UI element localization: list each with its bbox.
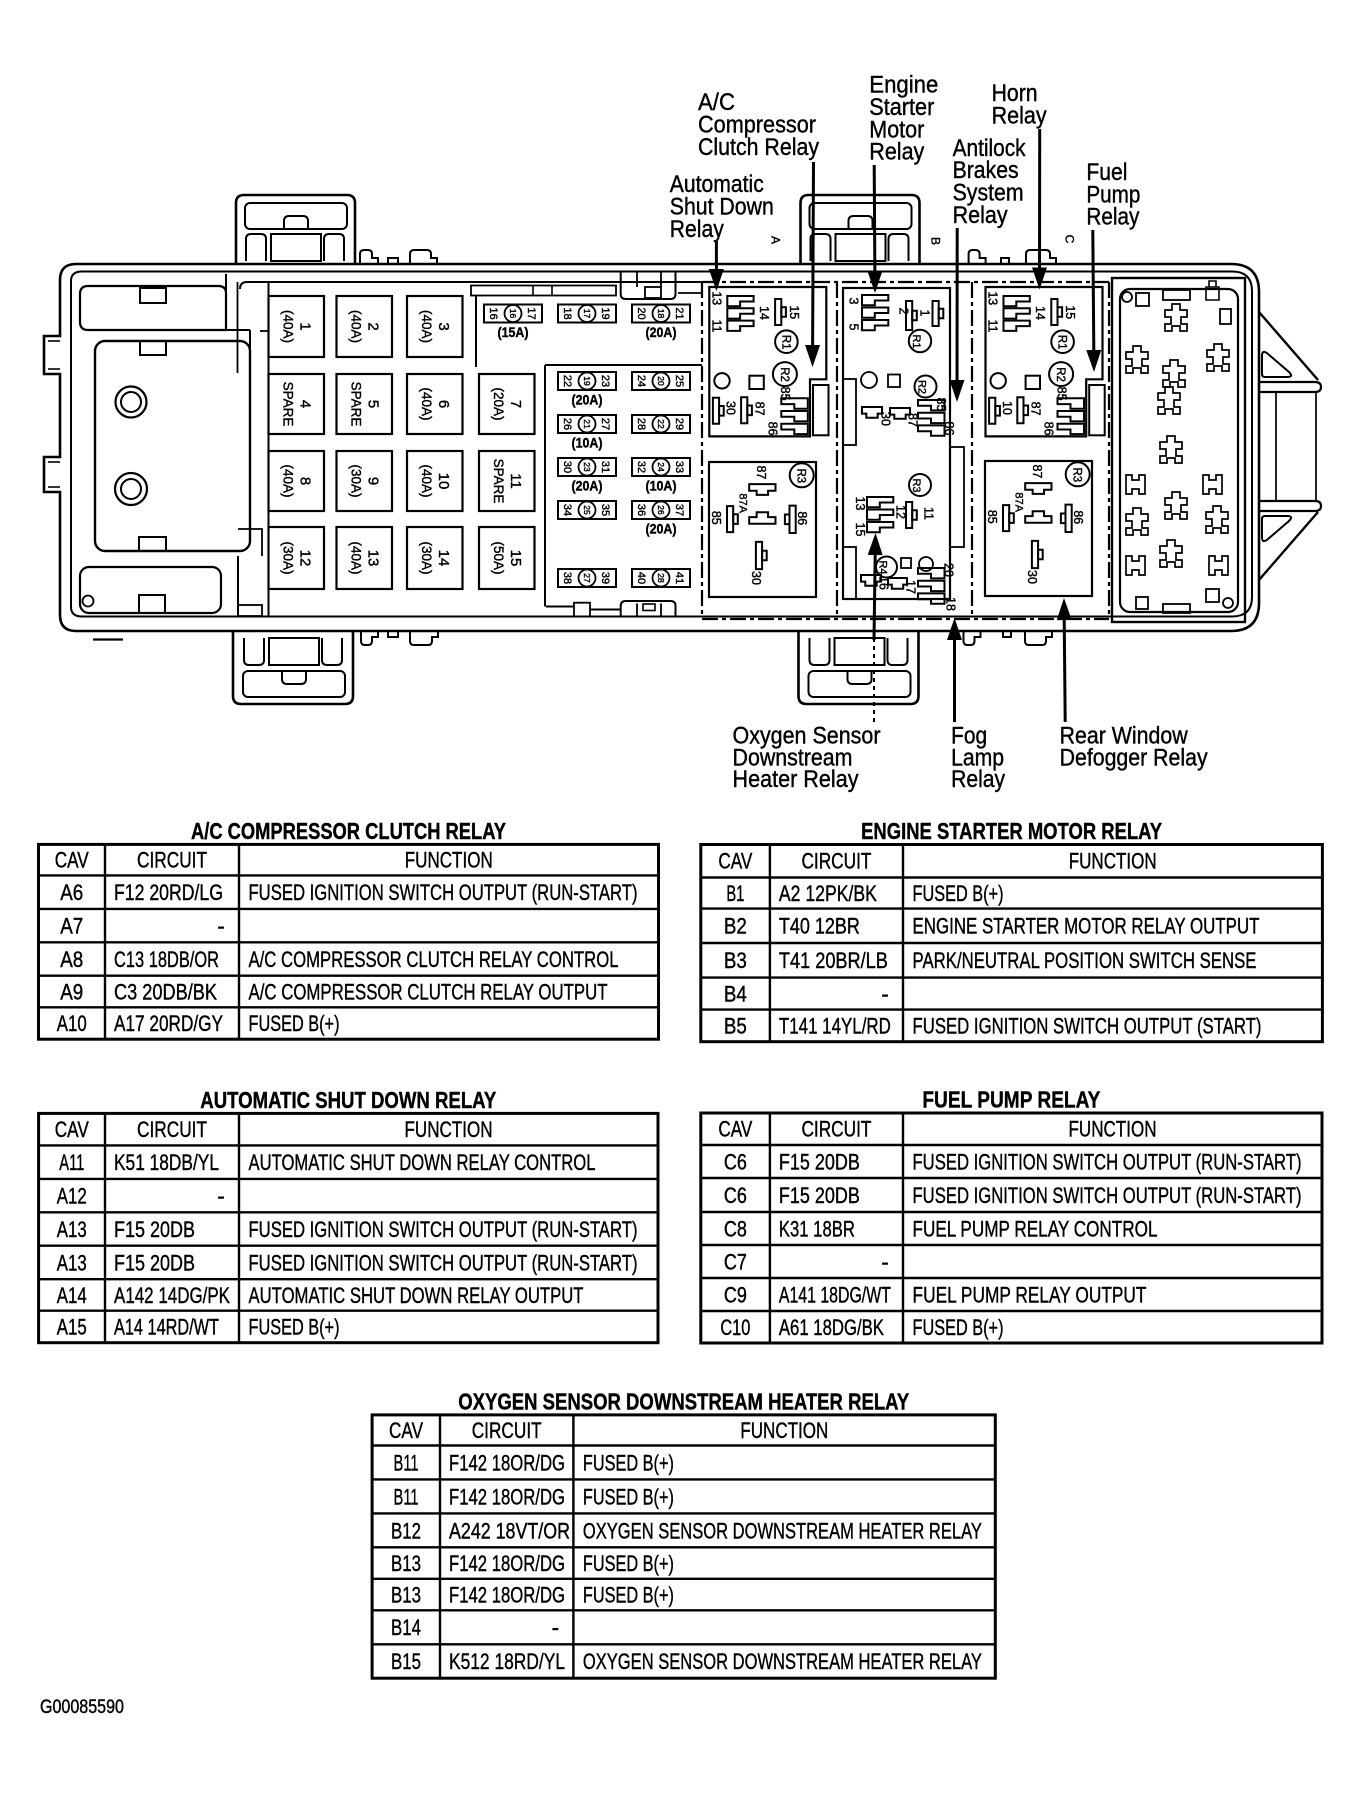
svg-text:CAV: CAV [718,1117,752,1142]
svg-text:5: 5 [364,400,381,408]
svg-text:87: 87 [754,465,768,479]
svg-text:4: 4 [296,400,313,408]
svg-text:OXYGEN SENSOR DOWNSTREAM HEATE: OXYGEN SENSOR DOWNSTREAM HEATER RELAY [458,1388,909,1414]
svg-text:(20A): (20A) [572,392,603,408]
svg-text:A/C COMPRESSOR CLUTCH RELAY: A/C COMPRESSOR CLUTCH RELAY [191,818,506,844]
svg-text:A15: A15 [57,1315,87,1340]
svg-text:CIRCUIT: CIRCUIT [472,1418,542,1443]
svg-text:13: 13 [709,291,723,305]
svg-text:27: 27 [599,418,611,430]
svg-text:85: 85 [709,511,723,525]
svg-text:FUNCTION: FUNCTION [1069,849,1157,874]
svg-text:AUTOMATIC SHUT DOWN RELAY CONT: AUTOMATIC SHUT DOWN RELAY CONTROL [249,1150,596,1175]
svg-text:F142 18OR/DG: F142 18OR/DG [449,1484,565,1509]
svg-text:K512 18RD/YL: K512 18RD/YL [449,1649,565,1674]
svg-text:R1: R1 [1055,335,1067,350]
svg-text:87A: 87A [737,493,749,513]
svg-text:19: 19 [599,307,611,319]
svg-text:R1: R1 [779,335,791,350]
svg-text:CAV: CAV [55,848,89,873]
svg-text:-: - [881,1249,889,1274]
svg-text:11: 11 [922,507,936,520]
svg-text:T41 20BR/LB: T41 20BR/LB [779,948,888,973]
svg-text:22: 22 [561,375,573,387]
svg-text:C: C [1063,235,1077,244]
svg-text:Relay: Relay [869,139,924,166]
svg-text:C13 18DB/OR: C13 18DB/OR [114,947,219,972]
svg-text:(40A): (40A) [348,310,363,343]
svg-text:27: 27 [582,573,592,583]
svg-text:30: 30 [724,401,738,415]
svg-text:39: 39 [599,572,611,584]
svg-text:34: 34 [561,504,573,516]
svg-text:9: 9 [364,477,381,485]
svg-text:23: 23 [599,375,611,387]
svg-text:1: 1 [296,322,313,330]
svg-text:13: 13 [853,497,867,511]
svg-text:17: 17 [525,307,537,319]
svg-text:3: 3 [435,322,452,330]
svg-text:20: 20 [656,376,666,386]
svg-text:(20A): (20A) [646,521,677,537]
svg-text:-: - [217,1184,225,1209]
svg-text:11: 11 [709,320,723,333]
svg-text:F15 20DB: F15 20DB [114,1217,195,1242]
svg-text:F15 20DB: F15 20DB [114,1250,195,1275]
svg-text:C10: C10 [720,1315,750,1340]
svg-text:2: 2 [364,322,381,330]
svg-text:ENGINE STARTER MOTOR RELAY: ENGINE STARTER MOTOR RELAY [861,818,1162,844]
svg-text:12: 12 [296,550,313,567]
svg-text:20: 20 [635,307,647,319]
svg-text:30: 30 [561,461,573,473]
svg-text:26: 26 [561,418,573,430]
svg-text:31: 31 [599,461,611,473]
svg-text:28: 28 [656,573,666,583]
svg-text:FUSED IGNITION SWITCH OUTPUT (: FUSED IGNITION SWITCH OUTPUT (RUN-START) [913,1183,1302,1208]
svg-text:28: 28 [635,418,647,430]
svg-text:3: 3 [847,298,861,305]
svg-text:A12: A12 [57,1184,87,1209]
svg-text:R2: R2 [916,380,928,394]
svg-text:ENGINE STARTER MOTOR RELAY OUT: ENGINE STARTER MOTOR RELAY OUTPUT [913,914,1260,939]
svg-text:33: 33 [673,461,685,473]
svg-text:A11: A11 [59,1150,84,1175]
svg-text:(15A): (15A) [498,324,529,340]
svg-text:87A: 87A [1013,492,1025,512]
svg-text:15: 15 [787,305,801,319]
svg-text:16: 16 [508,309,518,319]
svg-text:13: 13 [364,550,381,567]
svg-text:38: 38 [561,572,573,584]
svg-text:AUTOMATIC SHUT DOWN RELAY: AUTOMATIC SHUT DOWN RELAY [200,1087,496,1113]
svg-text:14: 14 [757,306,771,320]
svg-text:(10A): (10A) [646,478,677,494]
svg-text:B14: B14 [391,1615,421,1640]
svg-text:CAV: CAV [55,1117,89,1142]
svg-text:FUSED IGNITION SWITCH OUTPUT (: FUSED IGNITION SWITCH OUTPUT (RUN-START) [249,880,638,905]
svg-text:86: 86 [765,422,779,436]
svg-text:Clutch Relay: Clutch Relay [698,134,819,161]
svg-text:2: 2 [897,308,911,315]
svg-text:40: 40 [635,572,647,584]
svg-text:86: 86 [1042,422,1056,436]
svg-text:25: 25 [673,375,685,387]
svg-text:16: 16 [487,307,499,319]
svg-text:(10A): (10A) [572,435,603,451]
svg-text:FUSED B(+): FUSED B(+) [249,1315,340,1340]
svg-text:(40A): (40A) [280,464,295,497]
svg-text:15: 15 [1063,305,1077,319]
svg-text:-: - [552,1615,560,1640]
svg-text:FUNCTION: FUNCTION [740,1418,828,1443]
svg-text:11: 11 [507,473,524,489]
svg-text:F15 20DB: F15 20DB [779,1149,860,1174]
svg-text:FUNCTION: FUNCTION [405,1117,493,1142]
svg-text:A8: A8 [60,947,83,972]
svg-text:T40 12BR: T40 12BR [779,914,860,939]
svg-text:A/C COMPRESSOR CLUTCH RELAY OU: A/C COMPRESSOR CLUTCH RELAY OUTPUT [249,979,608,1004]
svg-text:B11: B11 [394,1450,419,1475]
svg-text:86: 86 [1071,510,1085,524]
svg-text:Relay: Relay [953,202,1008,229]
svg-text:FUSED IGNITION SWITCH OUTPUT (: FUSED IGNITION SWITCH OUTPUT (RUN-START) [249,1217,638,1242]
svg-text:A61 18DG/BK: A61 18DG/BK [779,1315,884,1340]
svg-text:A14 14RD/WT: A14 14RD/WT [114,1315,219,1340]
svg-text:B11: B11 [394,1484,419,1509]
svg-text:(40A): (40A) [419,387,434,420]
svg-text:PARK/NEUTRAL POSITION SWITCH S: PARK/NEUTRAL POSITION SWITCH SENSE [913,948,1257,973]
svg-text:11: 11 [986,320,1000,333]
svg-text:Relay: Relay [992,103,1047,130]
svg-text:(30A): (30A) [348,464,363,497]
svg-text:30: 30 [1025,570,1039,584]
svg-text:FUSED IGNITION SWITCH OUTPUT (: FUSED IGNITION SWITCH OUTPUT (START) [913,1014,1262,1039]
svg-text:7: 7 [507,400,524,408]
svg-text:19: 19 [582,376,592,386]
svg-text:23: 23 [582,462,592,472]
svg-text:(20A): (20A) [572,478,603,494]
svg-text:C6: C6 [724,1149,747,1174]
svg-text:FUSED B(+): FUSED B(+) [249,1011,340,1036]
svg-text:Heater Relay: Heater Relay [733,766,859,793]
svg-text:C3 20DB/BK: C3 20DB/BK [114,979,217,1004]
svg-text:C8: C8 [724,1216,747,1241]
svg-text:A7: A7 [60,914,83,939]
svg-text:FUSED B(+): FUSED B(+) [583,1484,674,1509]
svg-text:35: 35 [599,504,611,516]
svg-text:FUNCTION: FUNCTION [405,848,493,873]
svg-text:CIRCUIT: CIRCUIT [801,849,871,874]
svg-text:FUSED B(+): FUSED B(+) [913,1315,1004,1340]
svg-text:17: 17 [904,580,918,594]
svg-text:Defogger Relay: Defogger Relay [1060,744,1208,771]
svg-text:R3: R3 [1071,467,1083,482]
svg-text:21: 21 [582,419,592,429]
svg-text:C7: C7 [724,1249,747,1274]
svg-text:A13: A13 [57,1217,87,1242]
svg-text:B3: B3 [724,948,747,973]
svg-text:18: 18 [656,309,666,319]
svg-text:(40A): (40A) [419,464,434,497]
svg-text:Relay: Relay [951,766,1005,793]
svg-text:14: 14 [435,550,452,567]
svg-text:1: 1 [918,310,932,317]
svg-text:B1: B1 [726,881,744,906]
svg-text:F142 18OR/DG: F142 18OR/DG [449,1582,565,1607]
svg-text:A: A [769,236,783,244]
svg-text:24: 24 [635,375,647,387]
svg-text:FUEL PUMP RELAY: FUEL PUMP RELAY [922,1087,1100,1113]
svg-text:OXYGEN SENSOR DOWNSTREAM HEATE: OXYGEN SENSOR DOWNSTREAM HEATER RELAY [583,1518,982,1543]
svg-text:B15: B15 [391,1649,421,1674]
svg-text:6: 6 [435,400,452,408]
svg-text:FUSED IGNITION SWITCH OUTPUT (: FUSED IGNITION SWITCH OUTPUT (RUN-START) [249,1250,638,1275]
svg-text:K51 18DB/YL: K51 18DB/YL [114,1150,219,1175]
svg-text:AUTOMATIC SHUT DOWN RELAY OUTP: AUTOMATIC SHUT DOWN RELAY OUTPUT [249,1283,584,1308]
svg-text:OXYGEN SENSOR DOWNSTREAM HEATE: OXYGEN SENSOR DOWNSTREAM HEATER RELAY [583,1649,982,1674]
svg-text:CIRCUIT: CIRCUIT [801,1117,871,1142]
svg-text:85: 85 [985,510,999,524]
svg-text:R3: R3 [910,478,922,492]
svg-text:17: 17 [582,309,592,319]
svg-text:15: 15 [507,550,524,567]
svg-text:T141 14YL/RD: T141 14YL/RD [779,1014,891,1039]
svg-text:F142 18OR/DG: F142 18OR/DG [449,1551,565,1576]
svg-text:86: 86 [942,422,956,436]
svg-text:-: - [217,914,225,939]
svg-text:CIRCUIT: CIRCUIT [137,1117,207,1142]
svg-text:R3: R3 [795,468,807,483]
svg-text:25: 25 [582,505,592,515]
svg-text:(20A): (20A) [491,387,506,420]
svg-text:R1: R1 [910,334,922,348]
svg-text:FUSED B(+): FUSED B(+) [583,1450,674,1475]
svg-text:B: B [929,237,943,245]
svg-text:FUEL PUMP RELAY OUTPUT: FUEL PUMP RELAY OUTPUT [913,1282,1147,1307]
svg-text:15: 15 [853,523,867,537]
svg-text:R2: R2 [1054,367,1066,382]
svg-text:A2 12PK/BK: A2 12PK/BK [779,881,877,906]
svg-text:B12: B12 [391,1518,421,1543]
svg-text:C9: C9 [724,1282,747,1307]
svg-text:F142 18OR/DG: F142 18OR/DG [449,1450,565,1475]
svg-text:B4: B4 [724,982,747,1007]
svg-text:A17 20RD/GY: A17 20RD/GY [114,1011,223,1036]
svg-text:A242 18VT/OR: A242 18VT/OR [449,1518,570,1543]
svg-text:18: 18 [561,307,573,319]
svg-text:B13: B13 [391,1582,421,1607]
svg-text:Relay: Relay [1086,204,1139,231]
svg-text:(40A): (40A) [348,541,363,574]
svg-text:87: 87 [1029,402,1043,416]
svg-text:-: - [881,982,889,1007]
svg-text:CIRCUIT: CIRCUIT [137,848,207,873]
svg-text:R4: R4 [877,560,889,574]
svg-text:Relay: Relay [670,216,724,243]
svg-text:SPARE: SPARE [280,382,295,427]
svg-text:CAV: CAV [389,1418,423,1443]
svg-text:SPARE: SPARE [348,382,363,427]
svg-text:5: 5 [847,324,861,331]
svg-text:22: 22 [656,419,666,429]
svg-text:37: 37 [673,504,685,516]
svg-text:FUNCTION: FUNCTION [1069,1117,1157,1142]
svg-text:(50A): (50A) [491,541,506,574]
svg-text:R2: R2 [778,367,790,382]
svg-text:24: 24 [656,462,666,472]
svg-text:(30A): (30A) [280,541,295,574]
svg-text:F15 20DB: F15 20DB [779,1183,860,1208]
svg-text:B2: B2 [724,914,747,939]
svg-text:10: 10 [435,473,452,490]
svg-text:FUSED B(+): FUSED B(+) [913,881,1004,906]
svg-text:FUEL PUMP RELAY CONTROL: FUEL PUMP RELAY CONTROL [913,1216,1158,1241]
svg-text:G00085590: G00085590 [40,1697,124,1718]
svg-text:FUSED B(+): FUSED B(+) [583,1551,674,1576]
svg-text:32: 32 [635,461,647,473]
svg-text:18: 18 [944,597,958,611]
svg-text:A6: A6 [60,880,83,905]
svg-text:A14: A14 [57,1283,87,1308]
svg-text:B13: B13 [391,1551,421,1576]
svg-text:A/C COMPRESSOR CLUTCH RELAY CO: A/C COMPRESSOR CLUTCH RELAY CONTROL [249,947,619,972]
svg-text:41: 41 [673,572,685,584]
svg-text:36: 36 [635,504,647,516]
svg-text:10: 10 [1000,401,1014,415]
svg-text:C6: C6 [724,1183,747,1208]
svg-text:14: 14 [1033,306,1047,320]
svg-text:FUSED IGNITION SWITCH OUTPUT (: FUSED IGNITION SWITCH OUTPUT (RUN-START) [913,1149,1302,1174]
svg-text:A142 14DG/PK: A142 14DG/PK [114,1283,230,1308]
svg-text:87: 87 [753,402,767,416]
svg-text:K31 18BR: K31 18BR [779,1216,855,1241]
svg-text:(20A): (20A) [646,324,677,340]
svg-text:29: 29 [673,418,685,430]
svg-text:B5: B5 [724,1014,747,1039]
svg-text:26: 26 [656,505,666,515]
svg-text:(40A): (40A) [280,310,295,343]
svg-text:21: 21 [673,307,685,319]
svg-text:86: 86 [795,511,809,525]
svg-text:87: 87 [1030,464,1044,478]
svg-text:FUSED B(+): FUSED B(+) [583,1582,674,1607]
svg-text:F12 20RD/LG: F12 20RD/LG [114,880,223,905]
svg-text:30: 30 [749,571,763,585]
svg-text:8: 8 [296,477,313,485]
svg-text:A9: A9 [60,979,83,1004]
svg-text:A141 18DG/WT: A141 18DG/WT [779,1282,891,1307]
svg-text:13: 13 [986,291,1000,305]
svg-text:(30A): (30A) [419,541,434,574]
svg-text:CAV: CAV [718,849,752,874]
svg-text:A13: A13 [57,1250,87,1275]
svg-text:(40A): (40A) [419,310,434,343]
svg-text:SPARE: SPARE [491,459,506,504]
svg-text:A10: A10 [57,1011,87,1036]
